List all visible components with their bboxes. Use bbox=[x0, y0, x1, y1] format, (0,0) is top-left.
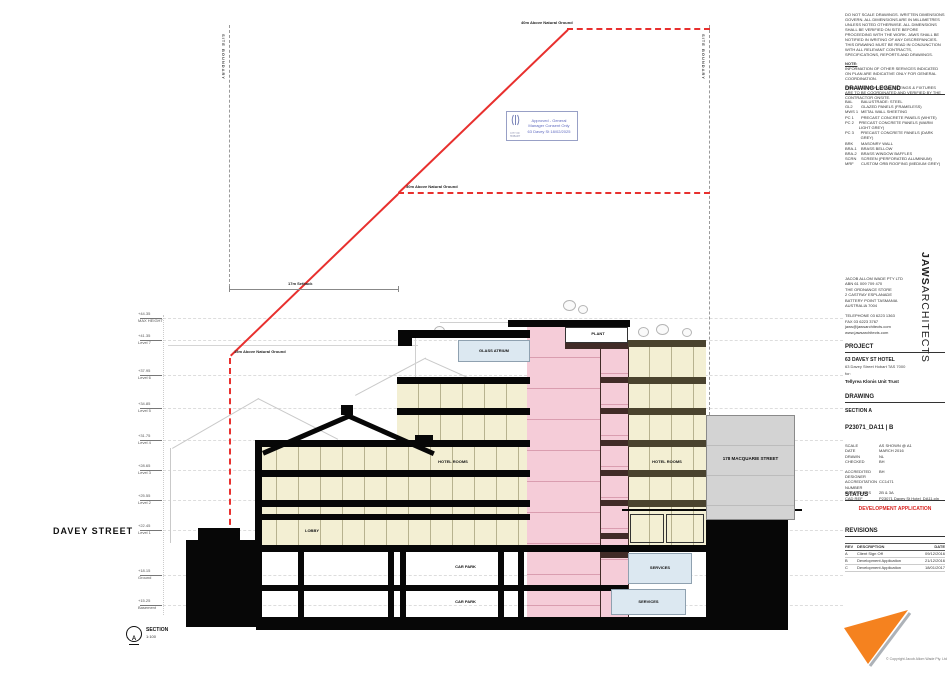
envelope-15m-label: 15m Above Natural Ground bbox=[234, 350, 286, 355]
envelope-diagonal-lower bbox=[230, 193, 399, 356]
core-shaft-strip bbox=[600, 343, 628, 617]
floor-slab bbox=[628, 500, 706, 507]
revision-row: A Client Sign Off 09/12/2016 bbox=[845, 551, 945, 558]
meta-row: ACCREDITED DESIGNERBH bbox=[845, 469, 945, 480]
ground-mass-left bbox=[186, 540, 256, 627]
setback-dimension-tick bbox=[398, 286, 399, 292]
level-marker: +25.55 bbox=[138, 494, 166, 498]
davey-street-label: DAVEY STREET bbox=[53, 526, 133, 536]
level-marker-name: Level 4 bbox=[138, 441, 166, 445]
hotel-rooms-label-left: HOTEL ROOMS bbox=[423, 459, 483, 464]
envelope-boundary-line bbox=[229, 358, 231, 545]
section-scale: 1:100 bbox=[146, 635, 156, 640]
column bbox=[400, 590, 406, 617]
column bbox=[518, 552, 524, 585]
level-marker: +34.85 bbox=[138, 402, 166, 406]
site-boundary-line-right bbox=[709, 25, 710, 415]
stamp-line-2: Manager Consent Only bbox=[523, 123, 575, 128]
firm-website: www.jawsarchitects.com bbox=[845, 330, 915, 335]
section-title: SECTION bbox=[146, 627, 168, 633]
column bbox=[498, 590, 504, 617]
room-outline bbox=[630, 514, 664, 543]
core-slab bbox=[600, 552, 628, 558]
approval-stamp: CITY OF HOBART Approved - General Manage… bbox=[506, 111, 578, 141]
site-boundary-label-right: SITE BOUNDARY bbox=[701, 34, 706, 80]
level-marker: +41.35 bbox=[138, 334, 166, 338]
context-outline bbox=[172, 398, 259, 449]
context-outline bbox=[440, 322, 510, 323]
council-crest-icon bbox=[510, 114, 521, 127]
stamp-line-3: 63 Davey St 18/02/2025 bbox=[523, 129, 575, 134]
column bbox=[388, 590, 394, 617]
status-value: DEVELOPMENT APPLICATION bbox=[845, 506, 945, 512]
column bbox=[298, 552, 304, 585]
basement-slab bbox=[256, 585, 628, 591]
glass-atrium-label: GLASS ATRIUM bbox=[458, 348, 530, 353]
context-outline bbox=[258, 398, 339, 440]
meta-row: CHECKEDBH bbox=[845, 459, 945, 464]
chimney bbox=[415, 435, 433, 444]
chimney bbox=[341, 405, 353, 415]
core-slab bbox=[600, 470, 628, 476]
column bbox=[400, 552, 406, 585]
hotel-rooms-label-right: HOTEL ROOMS bbox=[637, 459, 697, 464]
atrium-roof-step bbox=[398, 338, 412, 346]
services-label: SERVICES bbox=[611, 599, 686, 604]
core-slab bbox=[600, 500, 628, 506]
car-park-label-2: CAR PARK bbox=[438, 599, 493, 604]
firm-logo-bold: JAWS bbox=[919, 252, 931, 286]
context-outline bbox=[168, 345, 418, 346]
level-guide-line bbox=[163, 375, 843, 376]
firm-logo: JAWSARCHITECTS bbox=[919, 252, 931, 352]
floor-slab bbox=[628, 340, 706, 347]
envelope-40m-label: 40m Above Natural Ground bbox=[521, 21, 573, 26]
project-heading: PROJECT bbox=[845, 344, 945, 353]
floor-slab bbox=[255, 470, 530, 477]
level-marker-name: Level 6 bbox=[138, 376, 166, 380]
drawing-sheet: SITE BOUNDARY SITE BOUNDARY 40m Above Na… bbox=[0, 0, 951, 673]
council-name: CITY OF HOBART bbox=[507, 132, 523, 138]
tree-sketch bbox=[578, 305, 588, 314]
site-boundary-line-left bbox=[229, 25, 230, 287]
revisions-heading: REVISIONS bbox=[845, 528, 945, 537]
core-slab bbox=[565, 343, 628, 349]
revisions-table: REV DESCRIPTION DATE A Client Sign Off 0… bbox=[845, 543, 945, 572]
level-marker-name: Level 5 bbox=[138, 409, 166, 413]
floor-slab bbox=[255, 514, 530, 520]
tree-sketch bbox=[638, 327, 649, 337]
revisions-header: REV DESCRIPTION DATE bbox=[845, 543, 945, 551]
level-guide-line bbox=[163, 318, 843, 319]
level-marker-name: Level 7 bbox=[138, 341, 166, 345]
core-slab bbox=[600, 377, 628, 383]
column bbox=[518, 590, 524, 617]
level-marker-name: Basement bbox=[138, 606, 166, 610]
car-park-label-1: CAR PARK bbox=[438, 564, 493, 569]
project-name: 63 DAVEY ST HOTEL bbox=[845, 357, 895, 363]
floor-slab bbox=[628, 470, 706, 477]
status-heading: STATUS bbox=[845, 492, 945, 501]
setback-label: 17m Setback bbox=[288, 282, 312, 287]
neighbour-building bbox=[706, 415, 795, 520]
revision-row: B Development Application 21/12/2016 bbox=[845, 558, 945, 565]
legend-item: MRFCUSTOM ORB ROOFING (MEDIUM GREY) bbox=[845, 161, 945, 166]
floor-slab bbox=[397, 408, 530, 415]
level-marker: +44.35 bbox=[138, 312, 166, 316]
ground-mass-right bbox=[706, 520, 788, 630]
envelope-30m-line bbox=[398, 192, 710, 194]
tree-sketch bbox=[563, 300, 576, 311]
floor-slab bbox=[628, 440, 706, 447]
plant-label: PLANT bbox=[583, 331, 613, 336]
tower-roof-slab bbox=[508, 320, 630, 327]
context-outline bbox=[170, 448, 171, 543]
notes-paragraph: INFORMATION OF OTHER SERVICES INDICATED … bbox=[845, 66, 945, 81]
column bbox=[388, 552, 394, 585]
lobby-label: LOBBY bbox=[292, 528, 332, 533]
project-for: for: bbox=[845, 371, 851, 376]
copyright-note: © Copyright Jacob Allom Wade Pty. Ltd bbox=[873, 657, 947, 661]
level-marker-name: Ground bbox=[138, 576, 166, 580]
project-address: 63 Davey Street Hobart TAS 7000 bbox=[845, 364, 905, 369]
site-boundary-label-left: SITE BOUNDARY bbox=[221, 34, 226, 80]
level-marker-name: Level 1 bbox=[138, 531, 166, 535]
legend-item: PC 3PRECAST CONCRETE PANELS (DARK GREY) bbox=[845, 130, 945, 140]
setback-dimension-tick bbox=[229, 286, 230, 292]
legend-list: BALBALUSTRADE: STEEL GL2GLAZED PANELS (F… bbox=[845, 99, 945, 166]
room-outline bbox=[666, 514, 704, 543]
drawing-name: SECTION A bbox=[845, 408, 872, 414]
floor-slab bbox=[397, 377, 530, 384]
ground-mass-left-step bbox=[198, 528, 240, 542]
revision-row: C Development Application 18/01/2017 bbox=[845, 565, 945, 572]
level-marker: +18.15 bbox=[138, 569, 166, 573]
meta-row: ACCREDITATION NUMBERCC1471 bbox=[845, 479, 945, 490]
level-marker: +37.95 bbox=[138, 369, 166, 373]
firm-address: JACOB ALLOM WADE PTY LTD ABN 61 009 709 … bbox=[845, 276, 915, 335]
basement-wall bbox=[256, 552, 262, 617]
title-block: DO NOT SCALE DRAWINGS. WRITTEN DIMENSION… bbox=[845, 0, 947, 673]
level-marker: +28.65 bbox=[138, 464, 166, 468]
envelope-40m-line bbox=[567, 28, 710, 30]
floor-slab bbox=[255, 500, 530, 507]
level-marker: +31.75 bbox=[138, 434, 166, 438]
floor-slab bbox=[628, 408, 706, 415]
floor-slab bbox=[628, 377, 706, 384]
envelope-30m-label: 30m Above Natural Ground bbox=[406, 185, 458, 190]
level-marker-name: MAX HEIGHT bbox=[138, 319, 166, 323]
services-label: SERVICES bbox=[628, 565, 692, 570]
core-slab bbox=[600, 440, 628, 446]
notes-paragraph: DO NOT SCALE DRAWINGS. WRITTEN DIMENSION… bbox=[845, 12, 945, 57]
legend-heading: DRAWING LEGEND bbox=[845, 86, 945, 95]
neighbour-label: 178 MACQUARIE STREET bbox=[706, 456, 795, 461]
section-marker-letter: A bbox=[129, 635, 139, 645]
core-shaft bbox=[527, 327, 600, 617]
legend-item: PC 2PRECAST CONCRETE PANELS (WARM LIGHT … bbox=[845, 120, 945, 130]
drawing-heading: DRAWING bbox=[845, 394, 945, 403]
level-marker-name: Level 3 bbox=[138, 471, 166, 475]
project-client: Tellyrea Klonis Unit Trust bbox=[845, 379, 899, 384]
core-slab bbox=[600, 408, 628, 414]
section-marker-circle: A bbox=[126, 626, 142, 642]
core-slab bbox=[600, 533, 628, 539]
column bbox=[498, 552, 504, 585]
tree-sketch bbox=[656, 324, 669, 335]
level-marker-name: Level 2 bbox=[138, 501, 166, 505]
atrium-roof-slab bbox=[398, 330, 530, 338]
section-wall bbox=[255, 440, 262, 545]
level-marker: +22.45 bbox=[138, 524, 166, 528]
tree-sketch bbox=[682, 328, 692, 337]
setback-dimension-line bbox=[229, 289, 398, 290]
ground-slab bbox=[256, 545, 706, 552]
level-marker: +15.25 bbox=[138, 599, 166, 603]
column bbox=[298, 590, 304, 617]
drawing-number: P23071_DA11 | B bbox=[845, 425, 893, 431]
